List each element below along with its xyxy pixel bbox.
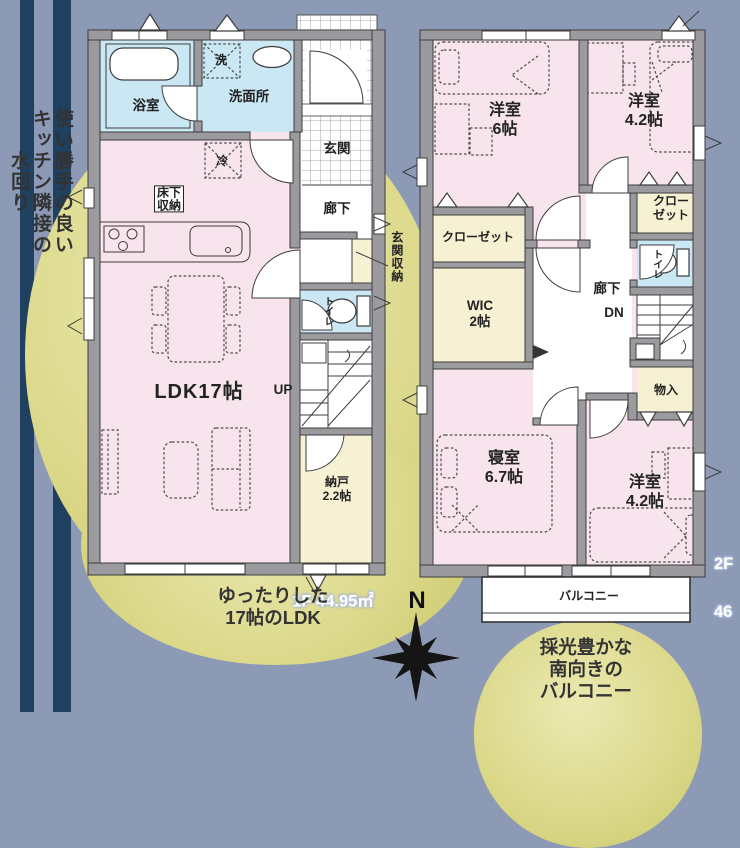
vent-arrow-icon bbox=[68, 318, 82, 334]
vent-arrow-icon bbox=[68, 190, 82, 204]
vent-arrow-icon bbox=[403, 165, 417, 179]
toilet-fixture-1f bbox=[328, 296, 370, 326]
roof-vent-icon bbox=[668, 16, 690, 31]
vent-arrow-icon bbox=[403, 393, 417, 407]
roof-vent-line bbox=[683, 11, 699, 26]
bathtub bbox=[110, 48, 178, 80]
floorplan-page: { "page": { "background": "#8c9ab6", "st… bbox=[0, 0, 740, 712]
compass-rose bbox=[372, 612, 460, 702]
floor2-plan bbox=[403, 11, 721, 622]
floor1-plan bbox=[68, 14, 390, 595]
vent-arrow-icon bbox=[705, 465, 721, 479]
stairs-1f bbox=[300, 340, 372, 428]
entrance-storage-box bbox=[352, 239, 372, 285]
roof-vent-icon bbox=[215, 15, 239, 31]
vent-arrow-icon bbox=[705, 136, 721, 150]
stairs-2f bbox=[630, 295, 700, 365]
floorplan-graphics: .wall{fill:#9b9b9f;stroke:#3d3d3d;stroke… bbox=[0, 0, 740, 712]
washbasin bbox=[253, 47, 291, 68]
balcony-outline bbox=[482, 577, 690, 622]
roof-vent-icon bbox=[140, 14, 160, 30]
